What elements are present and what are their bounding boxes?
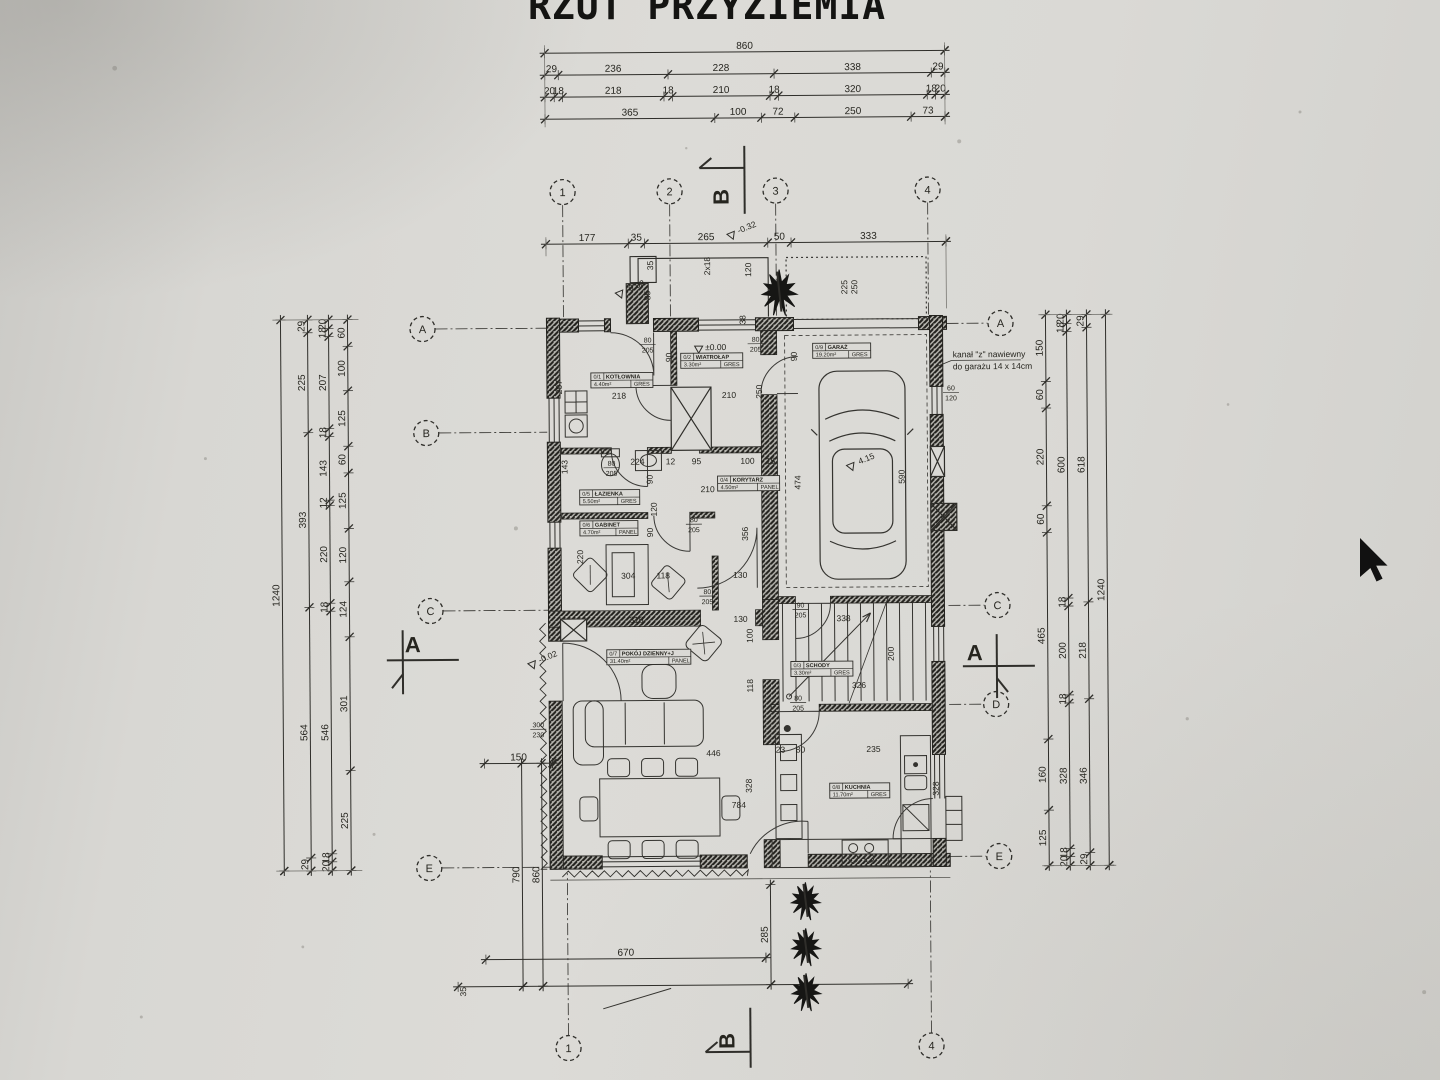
dim-free: 95 (692, 456, 702, 466)
dim-value: 333 (860, 231, 877, 242)
dim-value: 29 (546, 64, 558, 75)
dim-free: 118 (745, 679, 755, 693)
dim-value: 860 (531, 866, 542, 883)
opening-bottom: 205 (606, 471, 618, 478)
room-name: SCHODY (806, 663, 830, 669)
section-letter: B (714, 1033, 739, 1049)
dim-value: 1240 (271, 584, 282, 607)
dimension-chain: 1506022060465160125 (1034, 310, 1054, 871)
dim-free: 225 (839, 280, 849, 295)
room-name: GABINET (595, 522, 621, 528)
axis-label: B (423, 428, 430, 440)
axis-bubble: B (414, 420, 548, 446)
level-triangle (727, 231, 737, 241)
dim-value: 143 (318, 460, 329, 477)
level-mark: 4.15 (845, 451, 877, 472)
dim-free: 118 (656, 570, 670, 580)
axis-label: E (996, 851, 1003, 863)
dimension-chain: 3651007225073 (540, 105, 950, 124)
axis-label: E (426, 863, 433, 875)
room-name: KORYTARZ (733, 477, 764, 483)
axis-bubble: 4 (915, 177, 941, 316)
level-mark: ±0.00 (695, 342, 727, 353)
level-value: ±0.00 (705, 342, 727, 352)
opening-mark: 300230 (530, 722, 546, 739)
dim-value: 1240 (1096, 578, 1107, 601)
room-label: 0/1KOTŁOWNIA4.40m²GRES (591, 372, 653, 388)
axis-bubble: 1 (550, 180, 576, 319)
level-mark: -0.32 (725, 219, 758, 241)
axis-bubble: E (950, 843, 1012, 868)
dim-value: 200 (1058, 642, 1069, 659)
dim-value: 860 (736, 41, 753, 52)
dim-free: 356 (740, 526, 750, 541)
room-name: ŁAZIENKA (595, 491, 623, 497)
dim-free: 130 (733, 570, 748, 580)
level-triangle (615, 290, 625, 300)
opening-bottom: 205 (795, 612, 807, 619)
floor-plan-canvas: 8602923622833829201821818210183201820365… (0, 0, 1440, 1080)
dim-value: 218 (1078, 642, 1089, 659)
opening-bottom: 205 (642, 347, 654, 354)
axis-label: 4 (924, 185, 930, 197)
opening-bottom: 205 (792, 705, 804, 712)
room-label: 0/8KUCHNIA11.70m²GRES (830, 783, 890, 799)
room-label: 0/3SCHODY3.30m²GRES (791, 661, 853, 677)
room-area: 11.70m² (833, 792, 853, 798)
dim-line (307, 315, 311, 876)
dim-free: 2x18 (702, 257, 712, 276)
room-floor: PANEL (672, 658, 690, 664)
room-number: 0/6 (582, 523, 590, 529)
room-name: WIATROŁAP (696, 355, 730, 361)
room-floor: PANEL (761, 485, 779, 491)
opening-bottom: 205 (702, 599, 714, 606)
dim-free: 328 (744, 778, 754, 793)
axis-bubble: D (949, 691, 1009, 716)
dimension-chain: 1240 (269, 315, 289, 876)
dim-line (541, 241, 951, 244)
room-number: 0/5 (582, 492, 590, 498)
dim-free: 90 (645, 527, 655, 537)
axis-label: 1 (559, 187, 565, 199)
opening-top: 60 (947, 385, 955, 392)
dim-value: 236 (605, 64, 622, 75)
axis-leader (567, 873, 568, 1035)
level-value: -0.02 (537, 648, 559, 665)
dim-value: 228 (713, 63, 730, 74)
dim-value: 338 (844, 62, 861, 73)
axis-label: 1 (565, 1043, 571, 1055)
page-background: { "meta": { "title": "RZUT PRZYZIEMIA" }… (0, 0, 1440, 1080)
level-triangle (847, 462, 857, 472)
dim-value: 250 (845, 106, 862, 117)
dim-value: 670 (618, 948, 635, 959)
dim-free: 23 (776, 745, 786, 755)
dimension-chain: 2923622833829 (540, 61, 950, 80)
dim-value: 564 (299, 724, 310, 741)
axis-label: C (993, 600, 1001, 612)
section-marker-a: A (963, 634, 1035, 699)
room-area: 4.70m² (583, 530, 601, 536)
section-letter: B (709, 189, 734, 205)
dim-free: 90 (789, 351, 799, 361)
dim-free: 316 (629, 615, 644, 625)
room-floor: GRES (852, 352, 868, 358)
room-floor: GRES (724, 362, 740, 368)
section-line (963, 666, 1035, 667)
dim-free: 38 (737, 315, 747, 325)
section-line (387, 660, 459, 661)
dim-value: 20 (1059, 855, 1070, 867)
dim-value: 73 (922, 105, 934, 116)
dim-value: 29 (1075, 315, 1086, 327)
opening-top: 80 (752, 337, 760, 344)
dim-free: 200 (886, 646, 896, 661)
level-mark: -0.02 (526, 648, 559, 670)
dim-value: 618 (1076, 456, 1087, 473)
dim-value: 225 (297, 374, 308, 391)
dim-free: 130 (733, 614, 748, 624)
section-line (392, 674, 403, 688)
opening-top: 80 (703, 589, 711, 596)
room-number: 0/3 (793, 663, 801, 669)
opening-top: 80 (794, 695, 802, 702)
dim-free: 218 (612, 391, 627, 401)
section-line (997, 678, 1008, 692)
dimension-chain: 790 (511, 758, 529, 991)
opening-bottom: 230 (532, 732, 544, 739)
dim-free: 120 (649, 502, 659, 517)
dim-value: 225 (340, 812, 351, 829)
overhang-diagonal (603, 988, 671, 1008)
opening-top: 90 (797, 602, 805, 609)
dimension-chain: 201860018200183281820 (1055, 310, 1075, 871)
room-area: 4.40m² (594, 382, 612, 388)
dim-free: 15 (766, 456, 776, 466)
axis-leader (670, 204, 671, 317)
dimension-chain: 2961821834629 (1075, 309, 1095, 870)
opening-mark: 60120 (943, 385, 959, 402)
room-floor: GRES (621, 499, 637, 505)
room-floor: GRES (634, 382, 650, 388)
dim-value: 220 (319, 546, 330, 563)
dim-free: 250 (754, 384, 764, 399)
dim-line (328, 315, 332, 876)
room-number: 0/7 (609, 652, 617, 658)
axis-bubble: C (418, 598, 549, 624)
dim-free: 85 (642, 290, 652, 300)
opening-bottom: 205 (688, 527, 700, 534)
axis-bubble: C (948, 592, 1010, 617)
room-number: 0/1 (593, 375, 601, 381)
dim-free: 90 (645, 474, 655, 484)
level-value: 4.15 (857, 451, 876, 467)
dim-value: 35 (631, 233, 643, 244)
dim-value: 124 (338, 601, 349, 618)
room-number: 0/4 (720, 478, 728, 484)
dim-value: 125 (338, 492, 349, 509)
dim-value: 29 (300, 858, 311, 870)
dim-value: 600 (1056, 456, 1067, 473)
dim-value: 285 (760, 926, 771, 943)
axis-bubble: E (417, 855, 551, 881)
dim-free: 784 (732, 800, 747, 810)
axis-leader (563, 205, 564, 318)
dim-free: 12 (666, 456, 676, 466)
dim-value: 20 (321, 860, 332, 872)
room-label: 0/5ŁAZIENKA5.50m²GRES (580, 490, 640, 506)
room-floor: GRES (871, 792, 887, 798)
dim-value: 72 (772, 107, 784, 118)
axis-bubble: 2 (657, 179, 683, 318)
dim-value: 100 (337, 360, 348, 377)
dim-value: 346 (1079, 767, 1090, 784)
axis-bubble: 1 (555, 873, 581, 1061)
room-number: 0/2 (683, 355, 691, 361)
dim-value: 465 (1037, 627, 1048, 644)
dim-value: 265 (698, 232, 715, 243)
dim-free: 304 (621, 571, 636, 581)
dim-free: 446 (706, 748, 721, 758)
dim-free: 35 (458, 987, 468, 997)
axis-leader (439, 432, 547, 433)
room-name: GARAŻ (828, 344, 849, 351)
dim-value: 790 (511, 866, 522, 883)
axis-leader (436, 328, 547, 329)
dim-value: 207 (318, 374, 329, 391)
dim-free: 90 (664, 352, 674, 362)
note-line: do garażu 14 x 14cm (953, 361, 1032, 372)
axis-label: 4 (928, 1041, 934, 1053)
room-number: 0/9 (815, 345, 823, 351)
level-triangle (695, 346, 703, 353)
dim-free: 210 (722, 390, 737, 400)
dim-free: 326 (852, 680, 867, 690)
dim-line (540, 94, 950, 97)
dimension-chain: 860 (540, 39, 950, 58)
dimension-chain: 670 (481, 947, 771, 965)
dim-free: 80 (796, 744, 806, 754)
dim-line (540, 72, 950, 75)
axis-leader (443, 610, 548, 611)
dimension-chain: 285 (759, 880, 776, 990)
room-label: 0/6GABINET4.70m²PANEL (580, 521, 638, 537)
dim-line (347, 315, 351, 876)
section-marker-b: B (705, 1008, 750, 1068)
axis-label: A (997, 318, 1005, 330)
room-area: 5.50m² (583, 499, 601, 505)
dim-free: 338 (836, 613, 851, 623)
dimension-chain: 1773526550333 (541, 230, 951, 249)
level-triangle (528, 661, 538, 671)
dim-line (1086, 309, 1090, 870)
dim-value: 177 (579, 233, 596, 244)
dim-value: 546 (320, 724, 331, 741)
axis-label: C (426, 606, 434, 618)
dimension-chain: 2922539356429 (296, 315, 316, 876)
dim-value: 125 (1038, 829, 1049, 846)
opening-mark: 80205 (603, 461, 619, 478)
dim-free: 100 (745, 628, 755, 643)
room-area: 3.30m² (794, 671, 812, 677)
dim-value: 60 (1036, 513, 1047, 525)
dim-value: 29 (932, 61, 944, 72)
dimension-chain: 201821818210183201820 (540, 83, 950, 102)
garage-car (785, 335, 929, 588)
section-letter: A (405, 632, 421, 657)
dim-value: 29 (1079, 853, 1090, 865)
dim-value: 393 (298, 511, 309, 528)
dim-free: 207 (554, 380, 564, 395)
opening-bottom: 120 (945, 395, 957, 402)
room-number: 0/8 (832, 785, 840, 791)
side-steps (946, 796, 962, 840)
level-value: -0.32 (736, 219, 758, 236)
room-area: 31.40m² (610, 659, 631, 665)
dim-free: 120 (743, 262, 753, 277)
dim-free: 250 (849, 280, 859, 295)
axis-leader (930, 871, 931, 1033)
dim-value: 100 (730, 107, 747, 118)
dim-value: 220 (1035, 448, 1046, 465)
opening-top: 80 (644, 337, 652, 344)
duct-note: kanał "z" nawiewnydo garażu 14 x 14cm (937, 349, 1033, 372)
dim-value: 365 (622, 108, 639, 119)
eaves-line (550, 877, 950, 880)
section-letter: A (967, 640, 983, 665)
room-floor: GRES (834, 670, 850, 676)
dim-value: 120 (338, 546, 349, 563)
dim-value: 301 (339, 695, 350, 712)
opening-mark: 90205 (792, 602, 808, 619)
dim-value: 29 (296, 320, 307, 332)
section-line (699, 158, 711, 168)
dim-value: 160 (1038, 766, 1049, 783)
dimension-chain: 1240 (1094, 309, 1114, 870)
room-area: 3.30m² (684, 362, 702, 368)
axis-label: 3 (772, 186, 778, 198)
axis-bubble: A (410, 316, 547, 342)
room-label: 0/9GARAŻ19.20m²GRES (813, 343, 871, 359)
section-marker-a: A (387, 630, 459, 695)
dim-value: 320 (844, 84, 861, 95)
dimension-chain: 20182071814312220185461820 (317, 315, 337, 876)
dim-free: 474 (793, 475, 803, 490)
room-label: 0/4KORYTARZ4.50m²PANEL (718, 476, 780, 492)
axis-label: A (419, 324, 427, 336)
dimension-chain: 6010012560125120124301225 (336, 315, 356, 876)
room-floor: PANEL (619, 530, 637, 536)
room-label: 0/7POKÓJ DZIENNY+J31.40m²PANEL (607, 649, 691, 665)
room-area: 4.50m² (721, 485, 739, 491)
dim-value: 60 (1035, 389, 1046, 401)
dim-value: 210 (713, 85, 730, 96)
dim-value: 60 (337, 454, 348, 466)
dim-free: 210 (701, 484, 716, 494)
dim-value: 150 (1035, 339, 1046, 356)
mouse-cursor-icon (1360, 538, 1388, 582)
axis-leader (928, 203, 929, 316)
dim-value: 218 (605, 86, 622, 97)
dim-value: 60 (337, 327, 348, 339)
dim-free: 100 (740, 456, 755, 466)
room-label: 0/2WIATROŁAP3.30m²GRES (681, 353, 743, 369)
opening-top: 80 (608, 461, 616, 468)
axis-label: 2 (666, 186, 672, 198)
axis-label: D (992, 699, 1000, 711)
dim-free: 143 (559, 460, 569, 475)
dim-free: 220 (575, 550, 585, 565)
dim-line (1066, 310, 1070, 871)
opening-top: 80 (690, 517, 698, 524)
dim-free: 235 (866, 744, 881, 754)
opening-top: 300 (532, 722, 544, 729)
dim-free: 35 (645, 260, 655, 270)
dim-value: 125 (337, 410, 348, 427)
dim-value: 328 (1059, 767, 1070, 784)
opening-mark: 80205 (686, 517, 702, 534)
section-marker-b: B (699, 146, 744, 214)
room-name: KOTŁOWNIA (606, 374, 641, 380)
dimension-chain (453, 979, 913, 992)
opening-mark: 80205 (790, 695, 806, 712)
dim-free: 590 (897, 469, 907, 484)
axis-bubble: A (946, 310, 1013, 335)
axis-bubble: 4 (918, 870, 944, 1058)
dim-free: 224 (630, 457, 645, 467)
room-name: KUCHNIA (845, 785, 871, 791)
note-line: kanał "z" nawiewny (953, 349, 1026, 360)
dimension-chain: 860 (531, 758, 549, 991)
dim-free: 328 (931, 781, 941, 796)
room-area: 19.20m² (816, 352, 837, 358)
opening-bottom: 205 (750, 347, 762, 354)
dim-value: 150 (510, 752, 527, 763)
